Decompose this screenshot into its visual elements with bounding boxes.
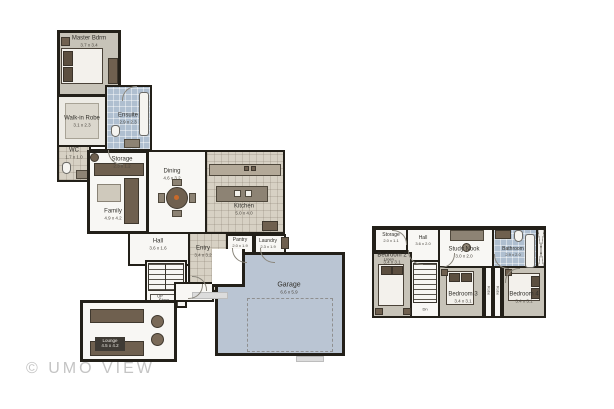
stairs-dn-label: Dn [422, 307, 427, 312]
pillow-icon [461, 273, 472, 282]
nightstand-icon [441, 269, 448, 276]
nightstand-icon [403, 308, 411, 315]
pillow-icon [449, 273, 460, 282]
room-label-storage-upper: Storage2.0 x 1.1 [382, 233, 400, 243]
chair-icon [189, 193, 196, 203]
room-label-master: Master Bdrm3.7 x 3.4 [72, 35, 106, 47]
room-label-laundry: Laundry2.3 x 1.9 [259, 239, 277, 249]
room-label-hall-upper: Hall3.6 x 2.0 [415, 236, 430, 246]
pillow-icon [63, 67, 73, 82]
room-label-ensuite: Ensuite2.9 x 2.3 [118, 112, 138, 124]
toilet-icon [111, 125, 120, 137]
room-label-dining: Dining4.6 x 3.2 [163, 168, 180, 180]
robe-label: Robe [495, 286, 500, 296]
room-label-bathroom: Bathroom2.9 x 2.0 [502, 247, 524, 257]
bathtub-icon [139, 92, 149, 136]
dresser-icon [108, 58, 118, 84]
vanity-icon [495, 230, 511, 239]
chair-icon [172, 179, 182, 186]
room-label-wc: WC1.7 x 1.0 [65, 147, 82, 159]
room-label-hall-main: Hall3.6 x 1.6 [149, 238, 166, 250]
room-label-study-nook: Study Nook3.0 x 2.0 [448, 246, 479, 258]
room-label-pantry: Pantry2.0 x 1.9 [232, 238, 247, 248]
toilet-icon [62, 162, 71, 174]
sofa-icon [90, 309, 144, 323]
sink-icon [234, 190, 241, 197]
cooktop-icon [251, 166, 256, 171]
plant-icon [90, 153, 99, 162]
nightstand-icon [375, 308, 383, 315]
pillow-icon [63, 51, 73, 66]
robe-label: Robe [486, 286, 491, 296]
room-label-bedroom4: Bedroom 43.4 x 3.1 [509, 291, 538, 303]
kitchen-island-icon [216, 186, 268, 202]
car-space-outline [247, 298, 333, 352]
room-label-bedroom3: Bedroom 33.4 x 3.1 [448, 291, 477, 303]
bathtub-icon [525, 234, 535, 268]
room-label-entry: Entry3.4 x 3.2 [194, 245, 211, 257]
nightstand-icon [61, 37, 70, 46]
laundry-appliance-icon [281, 237, 289, 249]
sink-icon [245, 190, 252, 197]
room-label-kitchen: Kitchen5.0 x 4.0 [234, 203, 254, 215]
garage-step [296, 356, 324, 362]
room-label-bedroom2: Bedroom 23.4 x 3.1 [377, 252, 406, 264]
room-label-robe: Walk-in Robe3.1 x 2.3 [64, 115, 100, 127]
watermark: © UMO VIEW [26, 360, 155, 378]
pillow-icon [392, 266, 403, 275]
floor-plan-canvas: © UMO VIEW [0, 0, 614, 409]
armchair-icon [151, 315, 164, 328]
cooktop-icon [244, 166, 249, 171]
room-label-garage: Garage6.6 x 5.9 [277, 282, 300, 294]
chair-icon [158, 193, 165, 203]
table-centerpiece-icon [174, 195, 179, 200]
coffee-table-icon [97, 184, 121, 202]
toilet-icon [514, 230, 523, 242]
armchair-icon [151, 333, 164, 346]
oven-icon [262, 221, 278, 231]
chair-icon [172, 210, 182, 217]
store-label: Store [159, 298, 170, 303]
room-label-storage-main: Storage2.3 x 1.2 [111, 156, 132, 168]
room-label-lounge: Lounge4.5 x 4.2 [95, 337, 125, 351]
stair-rail-icon [165, 263, 166, 291]
room-label-family: Family4.9 x 4.2 [104, 208, 122, 220]
vanity-icon [124, 139, 140, 148]
pillow-icon [531, 276, 540, 287]
stairs-icon [413, 263, 437, 303]
desk-icon [450, 230, 484, 241]
sofa-chaise-icon [124, 178, 139, 224]
pillow-icon [381, 266, 392, 275]
